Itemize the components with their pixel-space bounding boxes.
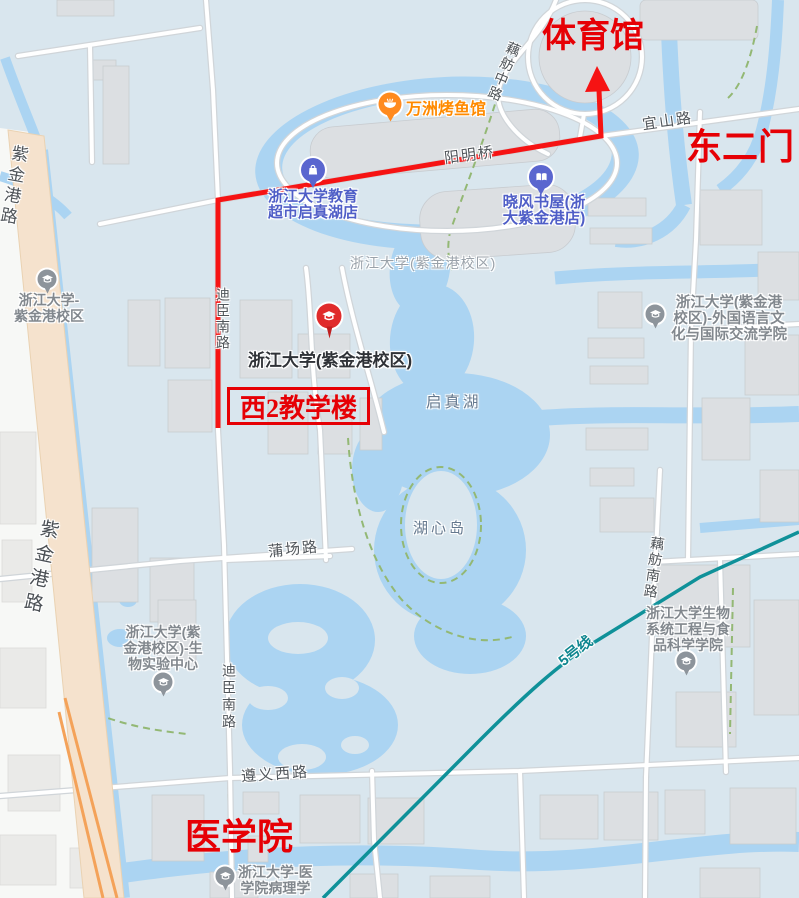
annotation-medical-school: 医学院 — [185, 808, 293, 860]
supermarket-marker[interactable] — [301, 158, 325, 182]
graduation-cap-icon — [41, 274, 53, 284]
bookstore-marker[interactable] — [529, 165, 553, 189]
water-label-huxin-island: 湖心岛 — [413, 517, 467, 538]
foreign-lang-label[interactable]: 浙江大学(紫金港 校区)-外国语言文 化与国际交流学院 — [671, 295, 787, 343]
annotation-east-gate: 东二门 — [686, 118, 794, 170]
book-icon — [535, 172, 548, 183]
graduation-cap-icon — [322, 310, 337, 322]
pathology-marker[interactable] — [216, 867, 235, 886]
road-label-dichen-south: 迪臣南路 — [219, 663, 239, 731]
shopping-bag-icon — [307, 164, 319, 176]
bio-lab-label[interactable]: 浙江大学(紫 金港校区)-生 物实验中心 — [123, 624, 202, 672]
bowl-icon — [384, 99, 397, 110]
graduation-cap-icon — [680, 656, 692, 666]
road-label-dichen-north: 迪臣南路 — [213, 287, 233, 351]
annotation-west2-label: 西2教学楼 — [240, 388, 357, 425]
area-label-campus: 浙江大学(紫金港校区) — [350, 253, 496, 273]
food-science-label[interactable]: 浙江大学生物 系统工程与食 品科学学院 — [646, 605, 730, 653]
pathology-label[interactable]: 浙江大学-医 学院病理学 — [238, 864, 313, 896]
bookstore-label[interactable]: 晓风书屋(浙 大紫金港店) — [503, 195, 586, 227]
graduation-cap-icon — [219, 871, 231, 881]
west-campus-label[interactable]: 浙江大学- 紫金港校区 — [14, 292, 84, 324]
university-main-label[interactable]: 浙江大学(紫金港校区) — [248, 346, 412, 371]
restaurant-marker[interactable] — [379, 93, 402, 116]
restaurant-label[interactable]: 万洲烤鱼馆 — [406, 95, 486, 119]
annotation-west2-box: 西2教学楼 — [227, 387, 370, 425]
west-campus-marker[interactable] — [38, 270, 57, 289]
graduation-cap-icon — [649, 309, 661, 319]
graduation-cap-icon — [157, 677, 169, 687]
map-viewport[interactable]: 紫金港路 紫金港路 迪臣南路 迪臣南路 藕舫中路 藕舫南路 宜山路 阳明桥 蒲场… — [0, 0, 799, 898]
food-science-marker[interactable] — [677, 652, 696, 671]
supermarket-label[interactable]: 浙江大学教育 超市启真湖店 — [268, 189, 358, 221]
map-canvas[interactable] — [0, 0, 799, 898]
bio-lab-marker[interactable] — [154, 673, 173, 692]
annotation-gym: 体育馆 — [542, 8, 644, 57]
university-main-marker[interactable] — [317, 304, 342, 329]
foreign-lang-marker[interactable] — [646, 305, 665, 324]
water-label-qizhen-lake: 启真湖 — [426, 390, 482, 412]
